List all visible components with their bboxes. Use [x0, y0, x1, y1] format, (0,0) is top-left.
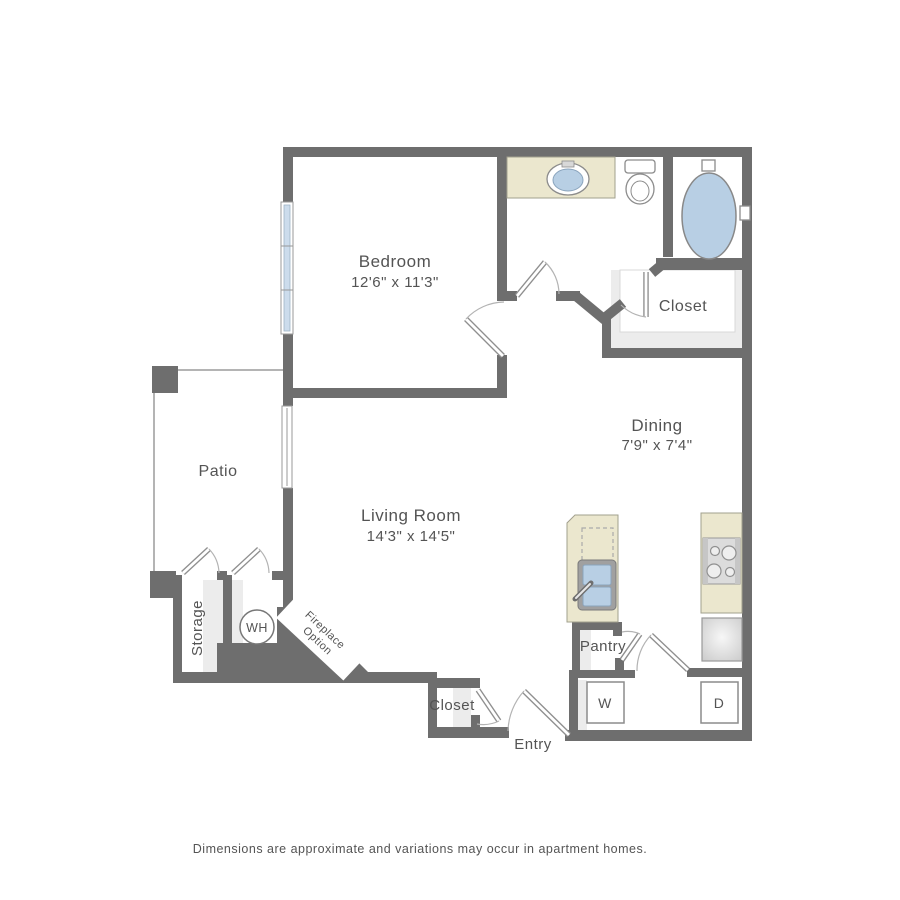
wall [663, 157, 673, 257]
wall [572, 622, 620, 630]
tub-handle-icon [740, 206, 750, 220]
wall [283, 334, 293, 388]
door-arc [209, 549, 219, 573]
entry-label: Entry [514, 736, 552, 753]
wall [283, 147, 752, 157]
wall [283, 388, 507, 398]
entry-closet-label: Closet [429, 697, 475, 714]
door-arc [477, 721, 499, 725]
patio-pillar [150, 571, 176, 598]
bedroom-dimensions: 12'6" x 11'3" [351, 274, 439, 291]
living-room-label: Living Room [361, 506, 461, 525]
wall [742, 147, 752, 740]
sink-faucet-icon [562, 161, 574, 167]
sink-basin [583, 565, 611, 585]
wall [223, 575, 232, 643]
water-heater-label: WH [246, 621, 268, 635]
laundry-floor-shade [578, 680, 587, 730]
burner-icon [711, 547, 720, 556]
bedroom-label: Bedroom [359, 252, 431, 271]
stove-rail [735, 538, 740, 584]
burner-icon [707, 564, 721, 578]
wall [497, 291, 517, 301]
bedroom-window-glass [284, 205, 290, 331]
wall [283, 488, 293, 612]
door-arc [637, 635, 651, 671]
wall [613, 622, 622, 636]
patio-pillar [152, 366, 178, 393]
wall [569, 672, 578, 736]
door-bedroom [466, 302, 504, 356]
wall [565, 730, 752, 741]
door-arc [259, 549, 269, 573]
wall [602, 348, 752, 358]
wall [428, 727, 509, 738]
toilet-tank [625, 160, 655, 173]
wall [428, 678, 480, 688]
wall [687, 668, 752, 677]
dryer-label: D [714, 695, 725, 711]
storage-label: Storage [189, 600, 206, 656]
burner-icon [726, 568, 735, 577]
wall [283, 398, 293, 406]
door-water-heater [233, 549, 269, 573]
bathroom-sink-basin [553, 169, 583, 191]
wall [656, 258, 752, 270]
washer-label: W [598, 695, 612, 711]
door-arc [545, 262, 559, 294]
wall [497, 355, 507, 398]
door-storage [183, 549, 219, 573]
door-arc [466, 302, 504, 319]
door-arc [508, 691, 524, 731]
living-room-dimensions: 14'3" x 14'5" [367, 528, 456, 545]
stove-rail [703, 538, 708, 584]
burner-icon [722, 546, 736, 560]
floor-plan-canvas: Bedroom 12'6" x 11'3" Living Room 14'3" … [0, 0, 900, 900]
wall [283, 157, 293, 202]
bathtub-icon [682, 173, 736, 259]
refrigerator-icon [702, 618, 742, 661]
toilet-icon [626, 174, 654, 204]
dining-label: Dining [631, 416, 682, 435]
pantry-label: Pantry [580, 638, 626, 655]
door-kitchen-laundry [637, 635, 688, 671]
bath-closet-label: Closet [659, 298, 707, 315]
door-bathroom [517, 262, 559, 296]
door-entry [508, 691, 569, 735]
tub-faucet-icon [702, 160, 715, 171]
dining-dimensions: 7'9" x 7'4" [621, 437, 692, 454]
floor-plan-page: Bedroom 12'6" x 11'3" Living Room 14'3" … [0, 0, 900, 900]
patio-structure [150, 366, 283, 598]
stove-icon [703, 538, 740, 584]
door-entry-closet [477, 690, 499, 725]
patio-label: Patio [199, 463, 238, 480]
disclaimer-footnote: Dimensions are approximate and variation… [193, 842, 647, 856]
bathroom-fixtures [507, 157, 750, 259]
wall [497, 157, 507, 293]
wall [272, 571, 287, 580]
